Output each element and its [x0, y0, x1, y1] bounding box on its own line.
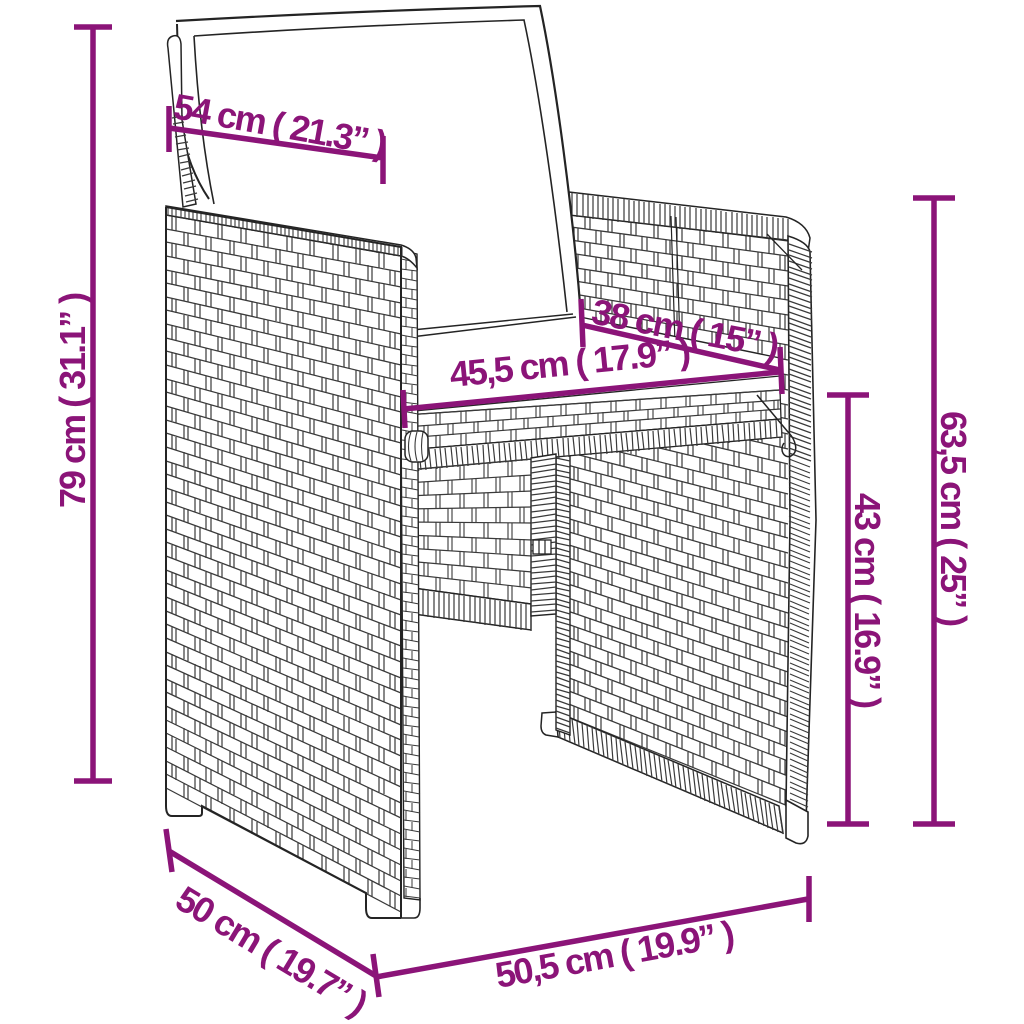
svg-text:50,5 cm ( 19.9” ): 50,5 cm ( 19.9” )	[492, 912, 737, 995]
svg-text:63,5 cm ( 25” ): 63,5 cm ( 25” )	[933, 411, 974, 626]
svg-text:43 cm ( 16.9” ): 43 cm ( 16.9” )	[847, 493, 888, 708]
svg-text:79 cm ( 31.1” ): 79 cm ( 31.1” )	[52, 293, 93, 508]
svg-text:50 cm ( 19.7” ): 50 cm ( 19.7” )	[169, 878, 375, 1024]
